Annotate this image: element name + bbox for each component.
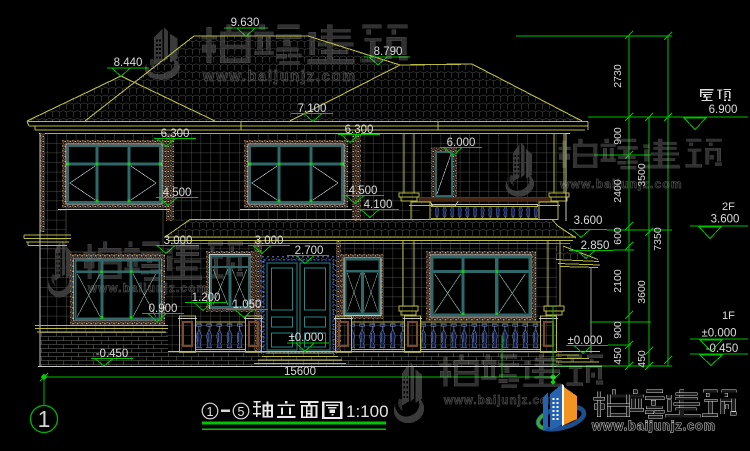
svg-text:2F: 2F: [722, 201, 735, 213]
svg-text:www.baijunjz.com: www.baijunjz.com: [443, 395, 559, 407]
svg-text:2730: 2730: [612, 64, 624, 88]
svg-text:www.baijunjz.com: www.baijunjz.com: [559, 177, 683, 191]
svg-text:1:100: 1:100: [346, 402, 389, 421]
svg-text:8.440: 8.440: [114, 57, 143, 69]
svg-text:5: 5: [238, 405, 245, 419]
svg-text:1: 1: [38, 406, 51, 432]
svg-text:3.600: 3.600: [574, 215, 603, 227]
svg-text:www.baijunjz.com: www.baijunjz.com: [202, 69, 357, 85]
svg-text:±0.000: ±0.000: [701, 328, 736, 340]
svg-text:7350: 7350: [652, 227, 664, 251]
svg-text:www.baijunjz.com: www.baijunjz.com: [87, 283, 208, 295]
svg-text:9.630: 9.630: [231, 17, 260, 29]
svg-text:2100: 2100: [612, 269, 624, 293]
svg-text:450: 450: [612, 347, 624, 365]
svg-text:-0.450: -0.450: [706, 343, 739, 355]
svg-text:600: 600: [612, 227, 624, 245]
svg-text:www.baijunjz.com: www.baijunjz.com: [591, 419, 716, 433]
svg-text:900: 900: [612, 321, 624, 339]
svg-text:450: 450: [636, 350, 648, 368]
svg-text:15600: 15600: [284, 366, 316, 378]
svg-text:900: 900: [612, 127, 624, 145]
svg-text:3.600: 3.600: [711, 214, 740, 226]
svg-text:6.900: 6.900: [709, 104, 738, 116]
svg-text:±0.000: ±0.000: [288, 332, 323, 344]
svg-text:1: 1: [207, 405, 214, 419]
svg-text:3600: 3600: [636, 280, 648, 304]
svg-text:1F: 1F: [722, 310, 735, 322]
